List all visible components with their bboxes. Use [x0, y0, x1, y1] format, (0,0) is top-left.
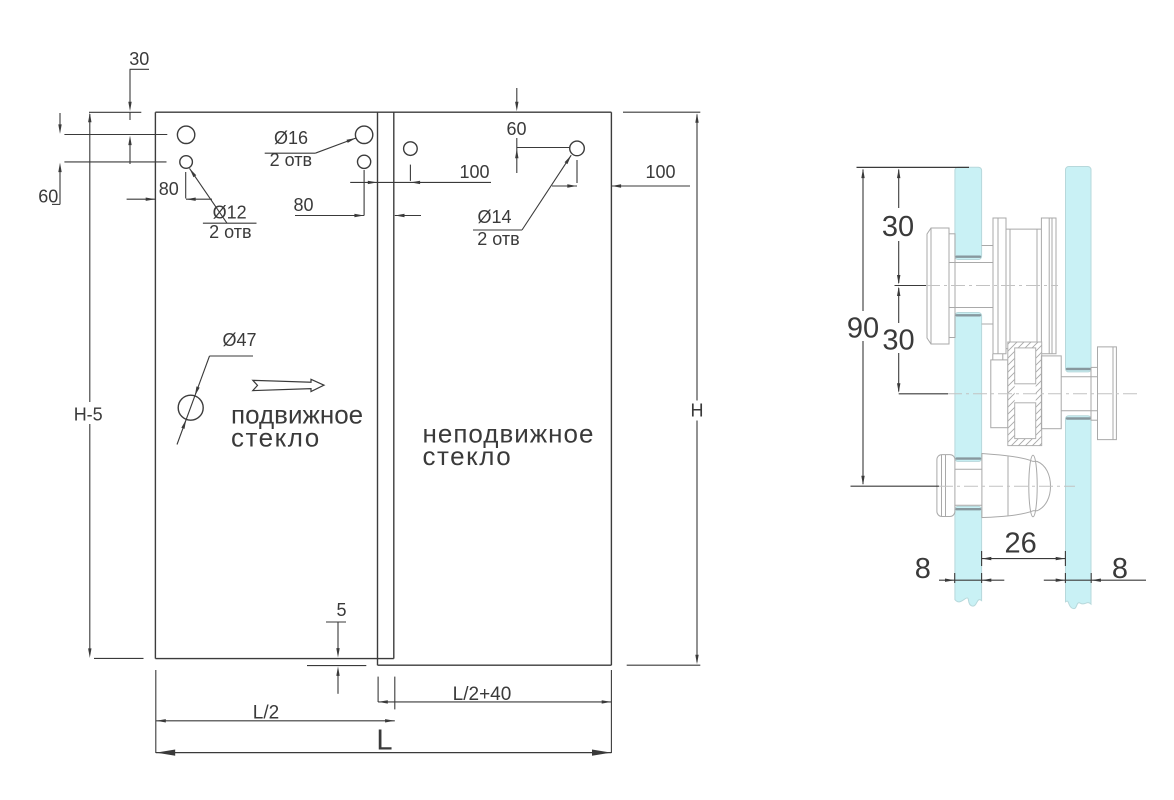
svg-text:2 отв: 2 отв — [477, 229, 519, 249]
svg-text:L/2: L/2 — [253, 702, 279, 723]
svg-text:80: 80 — [159, 179, 179, 199]
svg-text:90: 90 — [847, 312, 879, 344]
svg-text:2 отв: 2 отв — [209, 222, 251, 242]
svg-text:80: 80 — [293, 195, 313, 215]
svg-text:Ø16: Ø16 — [274, 128, 308, 148]
svg-text:стекло: стекло — [423, 441, 513, 471]
svg-text:26: 26 — [1004, 528, 1036, 560]
svg-text:30: 30 — [882, 325, 914, 357]
svg-text:Ø47: Ø47 — [222, 330, 256, 350]
svg-text:60: 60 — [38, 186, 58, 206]
svg-text:60: 60 — [506, 119, 526, 139]
svg-text:L/2+40: L/2+40 — [453, 684, 512, 705]
svg-text:30: 30 — [129, 49, 149, 69]
svg-text:L: L — [376, 724, 392, 756]
svg-text:5: 5 — [336, 600, 346, 620]
svg-text:H: H — [691, 401, 704, 421]
svg-text:30: 30 — [882, 211, 914, 243]
svg-text:100: 100 — [459, 162, 489, 182]
svg-text:H-5: H-5 — [74, 405, 103, 425]
svg-text:Ø12: Ø12 — [213, 203, 247, 223]
svg-text:8: 8 — [1112, 553, 1128, 585]
svg-text:стекло: стекло — [231, 422, 321, 452]
svg-text:8: 8 — [915, 553, 931, 585]
svg-text:100: 100 — [645, 162, 675, 182]
svg-text:Ø14: Ø14 — [477, 207, 511, 227]
svg-text:2 отв: 2 отв — [270, 150, 312, 170]
